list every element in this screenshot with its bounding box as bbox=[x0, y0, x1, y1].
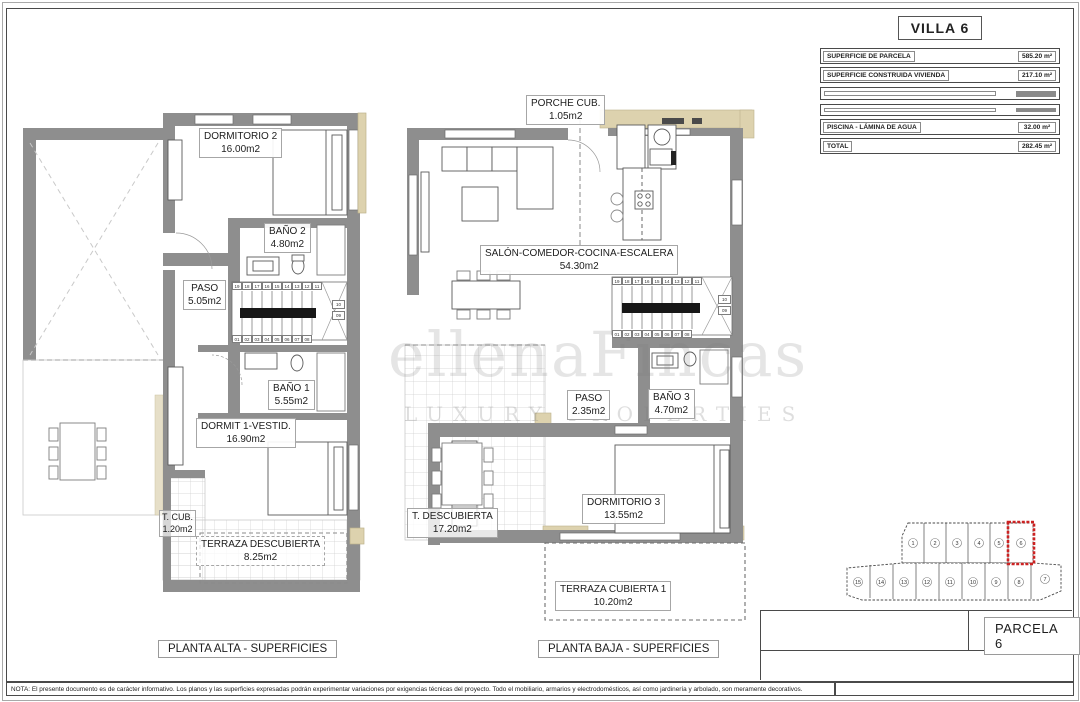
baja-stair-numbers-side: 1009 bbox=[718, 295, 731, 315]
villa-table-top-rows: SUPERFICIE DE PARCELA585.20 m² SUPERFICI… bbox=[820, 48, 1060, 83]
bottom-right-empty-cell bbox=[835, 682, 1074, 696]
room-label-dormitorio2: DORMITORIO 216.00m2 bbox=[199, 128, 282, 158]
villa-table-total-row: TOTAL282.45 m² bbox=[820, 138, 1060, 154]
titleblock-line-divider bbox=[968, 610, 969, 650]
villa-surface-table: VILLA 6 SUPERFICIE DE PARCELA585.20 m² S… bbox=[820, 16, 1060, 154]
svg-text:14: 14 bbox=[878, 580, 884, 586]
svg-text:13: 13 bbox=[901, 580, 907, 586]
table-row: SUPERFICIE DE PARCELA585.20 m² bbox=[820, 48, 1060, 64]
svg-text:11: 11 bbox=[947, 580, 953, 586]
alta-stair-numbers-bottom: 0102030405060708 bbox=[232, 335, 312, 343]
room-label-tcub: T. CUB.1.20m2 bbox=[159, 510, 196, 537]
caption-planta-baja: PLANTA BAJA - SUPERFICIES bbox=[538, 640, 719, 658]
disclaimer-note: NOTA: El presente documento es de caráct… bbox=[6, 682, 835, 696]
floorplan-sheet: ellenaFincas LUXURY PROPERTIES DORMITORI… bbox=[0, 0, 1080, 702]
svg-text:6: 6 bbox=[1019, 541, 1022, 547]
svg-text:4: 4 bbox=[977, 541, 980, 547]
caption-planta-alta: PLANTA ALTA - SUPERFICIES bbox=[158, 640, 337, 658]
room-label-salon: SALÓN-COMEDOR-COCINA-ESCALERA54.30m2 bbox=[480, 245, 678, 275]
villa-title: VILLA 6 bbox=[898, 16, 982, 40]
svg-text:9: 9 bbox=[994, 580, 997, 586]
room-label-terraza-cubierta1: TERRAZA CUBIERTA 110.20m2 bbox=[555, 581, 671, 611]
alta-stair-numbers-side: 1009 bbox=[332, 300, 345, 320]
titleblock-line-top bbox=[760, 610, 1072, 611]
room-label-bano3: BAÑO 34.70m2 bbox=[648, 389, 695, 419]
svg-text:2: 2 bbox=[933, 541, 936, 547]
svg-text:5: 5 bbox=[997, 541, 1000, 547]
room-label-porche: PORCHE CUB.1.05m2 bbox=[526, 95, 605, 125]
svg-text:12: 12 bbox=[924, 580, 930, 586]
room-label-dormitorio3: DORMITORIO 313.55m2 bbox=[582, 494, 665, 524]
room-label-tdescubierta: T. DESCUBIERTA17.20m2 bbox=[407, 508, 498, 538]
baja-stair-numbers-bottom: 0102030405060708 bbox=[612, 330, 692, 338]
alta-stair-numbers-top: 191817161514131211 bbox=[232, 282, 322, 290]
table-row: SUPERFICIE CONSTRUIDA VIVIENDA217.10 m² bbox=[820, 67, 1060, 83]
room-label-bano1: BAÑO 15.55m2 bbox=[268, 380, 315, 410]
room-label-terraza-descubierta: TERRAZA DESCUBIERTA8.25m2 bbox=[196, 536, 325, 566]
titleblock-line-left bbox=[760, 610, 761, 680]
svg-text:15: 15 bbox=[855, 580, 861, 586]
svg-text:1: 1 bbox=[911, 541, 914, 547]
alta-stairs bbox=[232, 282, 347, 340]
svg-text:8: 8 bbox=[1017, 580, 1020, 586]
room-label-dormit1: DORMIT 1-VESTID.16.90m2 bbox=[196, 418, 296, 448]
room-label-paso-baja: PASO2.35m2 bbox=[567, 390, 610, 420]
baja-stair-numbers-top: 191817161514131211 bbox=[612, 277, 702, 285]
svg-text:7: 7 bbox=[1043, 577, 1046, 583]
villa-table-group-construida bbox=[820, 87, 1060, 100]
watermark-brand: ellenaFincas bbox=[388, 318, 808, 391]
parcel-map: 1 2 3 4 5 6 15 14 13 12 11 10 9 8 7 bbox=[840, 505, 1068, 610]
villa-table-piscina-row: PISCINA - LÁMINA DE AGUA32.00 m² bbox=[820, 119, 1060, 135]
svg-text:3: 3 bbox=[955, 541, 958, 547]
room-label-paso-alta: PASO5.05m2 bbox=[183, 280, 226, 310]
parcela-label: PARCELA 6 bbox=[984, 617, 1080, 655]
svg-text:10: 10 bbox=[970, 580, 976, 586]
room-label-bano2: BAÑO 24.80m2 bbox=[264, 223, 311, 253]
villa-table-group-descubierta bbox=[820, 104, 1060, 116]
